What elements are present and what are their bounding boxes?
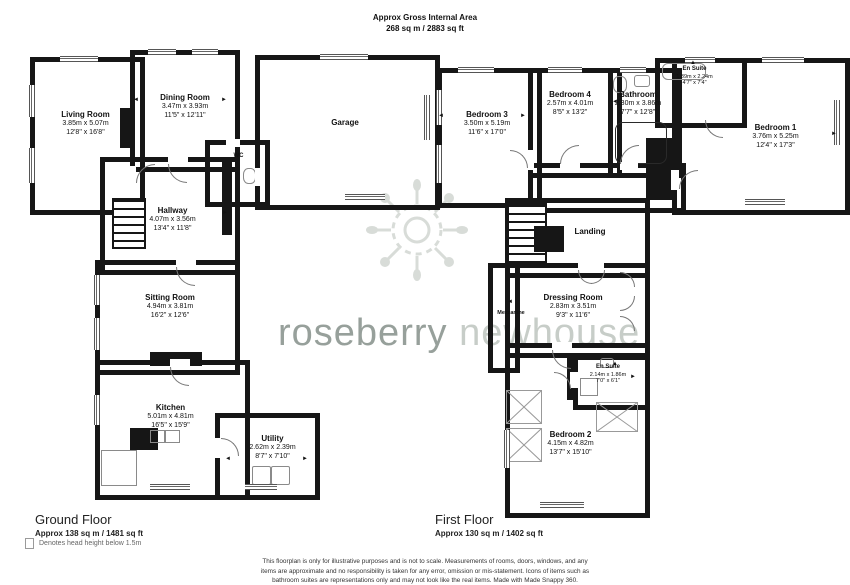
head-height-legend-text: Denotes head height below 1.5m <box>39 540 141 547</box>
disclaimer-text: This floorplan is only for illustrative … <box>258 557 592 585</box>
window <box>504 430 510 468</box>
head-height-legend: Denotes head height below 1.5m <box>25 538 141 549</box>
window <box>540 502 584 508</box>
window <box>745 199 785 205</box>
window <box>94 395 100 425</box>
window <box>192 49 218 55</box>
window <box>320 54 368 60</box>
wardrobe-crossed-box <box>506 390 542 424</box>
room-label-hallway: Hallway 4.07m x 3.56m 13'4" x 11'8" <box>120 206 225 234</box>
first-floor-area: Approx 130 sq m / 1402 sq ft <box>435 529 543 538</box>
door-gap <box>168 156 188 164</box>
room-label-garage: Garage <box>300 118 390 128</box>
room-label-living-room: Living Room 3.85m x 5.07m 12'8" x 16'8" <box>33 110 138 138</box>
room-label-wc: WC <box>226 153 251 161</box>
window <box>94 275 100 305</box>
door-gap <box>255 168 263 186</box>
ground-floor-title: Ground Floor <box>35 512 143 527</box>
arrow-left-icon: ◄ <box>507 299 513 305</box>
window <box>436 145 442 183</box>
room-label-mezzanine: Mezzanine <box>485 310 537 317</box>
header: Approx Gross Internal Area 268 sq m / 28… <box>0 12 850 34</box>
door-gap <box>170 359 190 367</box>
bedroom3-walls <box>437 68 542 208</box>
watermark-word-roseberry: roseberry <box>278 312 448 354</box>
room-label-dining-room: Dining Room 3.47m x 3.93m 11'5" x 12'11" <box>145 93 225 121</box>
ground-floor-area: Approx 138 sq m / 1481 sq ft <box>35 529 143 538</box>
door-gap <box>176 259 196 267</box>
window <box>458 67 494 73</box>
window <box>424 95 430 140</box>
window <box>834 100 840 145</box>
room-label-bedroom3: Bedroom 3 3.50m x 5.19m 11'6" x 17'0" <box>437 110 537 138</box>
kitchen-sink-unit <box>150 430 165 443</box>
window <box>548 67 582 73</box>
first-floor-title-block: First Floor Approx 130 sq m / 1402 sq ft <box>435 512 543 538</box>
kitchen-counter <box>101 450 137 486</box>
window <box>245 484 277 490</box>
first-floor-title: First Floor <box>435 512 543 527</box>
utility-appliance <box>271 466 290 485</box>
door-gap <box>578 262 604 270</box>
door-gap <box>570 372 578 388</box>
door-gap <box>671 170 679 190</box>
window <box>29 148 35 183</box>
head-height-legend-icon <box>25 538 34 549</box>
arrow-left-icon: ◄ <box>133 97 139 103</box>
ground-floor-title-block: Ground Floor Approx 138 sq m / 1481 sq f… <box>35 512 143 538</box>
header-area: 268 sq m / 2883 sq ft <box>0 23 850 34</box>
header-title: Approx Gross Internal Area <box>0 12 850 23</box>
room-label-bathroom: Bathroom 2.30m x 3.86m 7'7" x 12'8" <box>600 90 676 118</box>
door-gap <box>705 112 723 120</box>
kitchen-sink-unit <box>165 430 180 443</box>
window <box>150 484 190 490</box>
room-label-kitchen: Kitchen 5.01m x 4.81m 16'5" x 15'9" <box>118 403 223 431</box>
door-gap <box>226 139 240 147</box>
window <box>620 67 646 73</box>
room-label-utility: Utility 2.62m x 2.39m 8'7" x 7'10" <box>225 434 320 462</box>
door-gap <box>128 166 136 186</box>
room-label-ensuite1: En Suite 1.39m x 2.24m 4'7" x 7'4" <box>652 66 737 87</box>
room-label-ensuite2: En Suite 2.14m x 1.86m 7'0" x 6'1" <box>580 364 636 385</box>
window <box>762 57 804 63</box>
wardrobe-crossed-box <box>596 402 638 432</box>
sink <box>634 75 650 87</box>
room-label-landing: Landing <box>545 227 635 237</box>
window <box>345 194 385 200</box>
room-label-sitting-room: Sitting Room 4.94m x 3.81m 16'2" x 12'6" <box>115 293 225 321</box>
window <box>94 318 100 350</box>
room-label-bedroom1: Bedroom 1 3.76m x 5.25m 12'4" x 17'3" <box>723 123 828 151</box>
garage-walls <box>255 55 440 210</box>
window <box>60 56 98 62</box>
door-gap <box>552 342 572 350</box>
utility-appliance <box>252 466 271 485</box>
window <box>148 49 176 55</box>
arrow-right-icon: ► <box>831 131 837 137</box>
floorplan-canvas: roseberry newhouse Approx Gross Internal… <box>0 0 850 585</box>
room-label-bedroom2: Bedroom 2 4.15m x 4.82m 13'7" x 15'10" <box>518 430 623 458</box>
